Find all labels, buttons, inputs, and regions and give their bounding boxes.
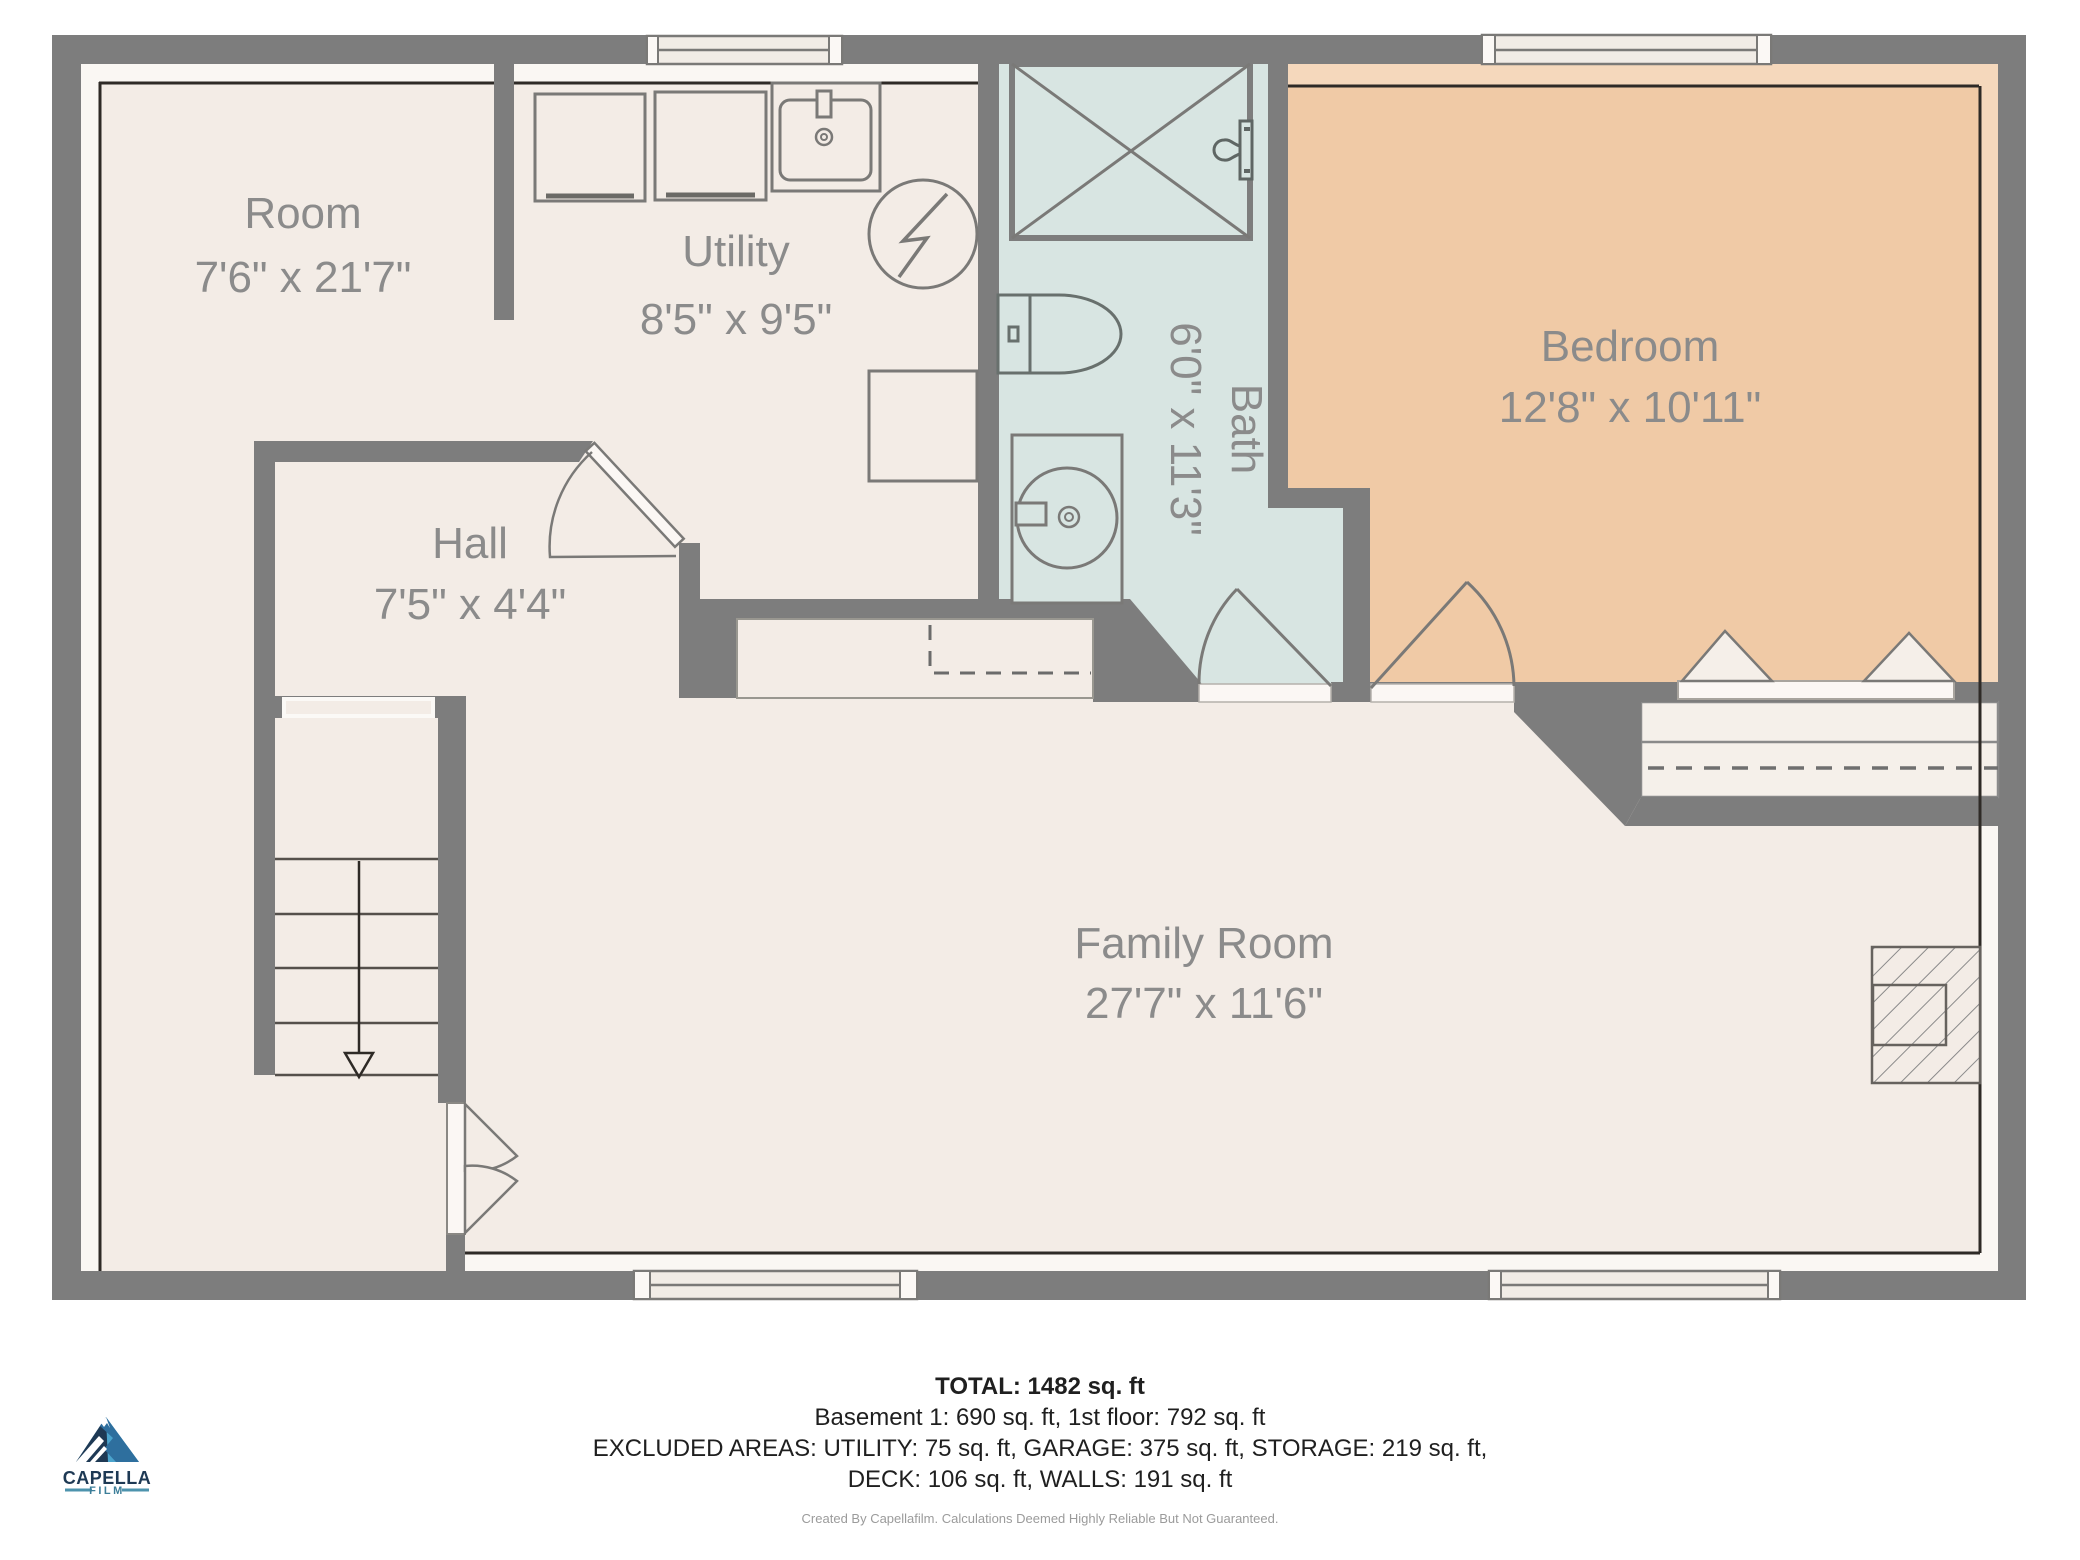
svg-text:Bath: Bath xyxy=(1222,384,1271,475)
svg-text:12'8" x 10'11": 12'8" x 10'11" xyxy=(1499,383,1762,432)
svg-text:Created By Capellafilm. Calcul: Created By Capellafilm. Calculations Dee… xyxy=(802,1511,1279,1526)
svg-text:Hall: Hall xyxy=(432,519,508,568)
svg-text:TOTAL: 1482 sq. ft: TOTAL: 1482 sq. ft xyxy=(935,1373,1145,1400)
svg-text:Utility: Utility xyxy=(682,227,790,276)
svg-text:8'5" x 9'5": 8'5" x 9'5" xyxy=(640,295,832,344)
svg-text:27'7" x 11'6": 27'7" x 11'6" xyxy=(1085,979,1323,1028)
svg-text:EXCLUDED AREAS: UTILITY: 75 sq: EXCLUDED AREAS: UTILITY: 75 sq. ft, GARA… xyxy=(593,1435,1488,1462)
svg-text:DECK: 106 sq. ft, WALLS: 191 s: DECK: 106 sq. ft, WALLS: 191 sq. ft xyxy=(848,1466,1233,1493)
svg-text:Room: Room xyxy=(244,189,361,238)
svg-text:Bedroom: Bedroom xyxy=(1541,322,1720,371)
svg-text:Family Room: Family Room xyxy=(1074,919,1333,968)
svg-text:7'5" x 4'4": 7'5" x 4'4" xyxy=(374,580,566,629)
svg-text:6'0" x 11'3": 6'0" x 11'3" xyxy=(1161,322,1210,536)
svg-text:7'6" x 21'7": 7'6" x 21'7" xyxy=(195,253,412,302)
svg-text:Basement 1: 690 sq. ft, 1st fl: Basement 1: 690 sq. ft, 1st floor: 792 s… xyxy=(815,1404,1266,1431)
svg-text:FILM: FILM xyxy=(89,1485,125,1497)
